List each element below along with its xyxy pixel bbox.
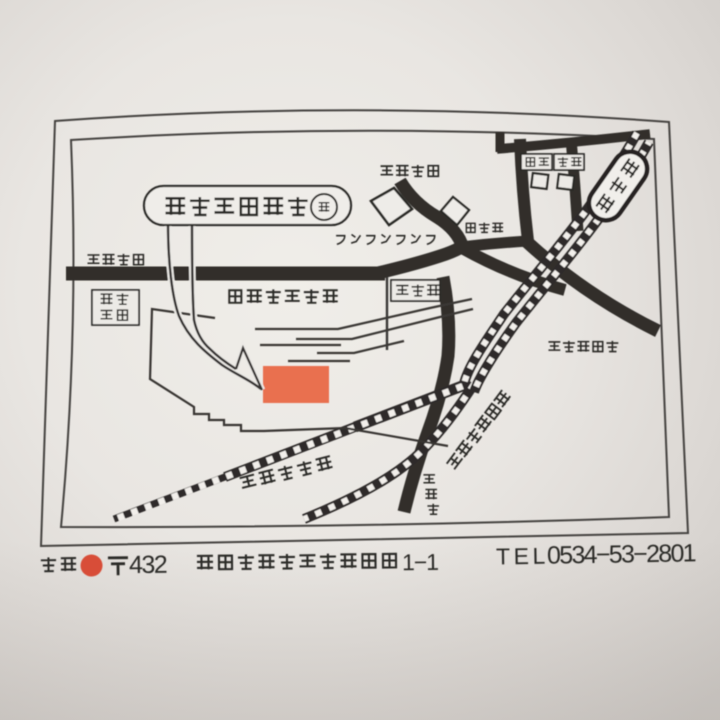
svg-text:1−1: 1−1 xyxy=(402,549,438,575)
svg-text:0534−53−2801: 0534−53−2801 xyxy=(547,539,696,569)
svg-text:TEL: TEL xyxy=(496,543,549,570)
svg-text:432: 432 xyxy=(129,551,167,579)
